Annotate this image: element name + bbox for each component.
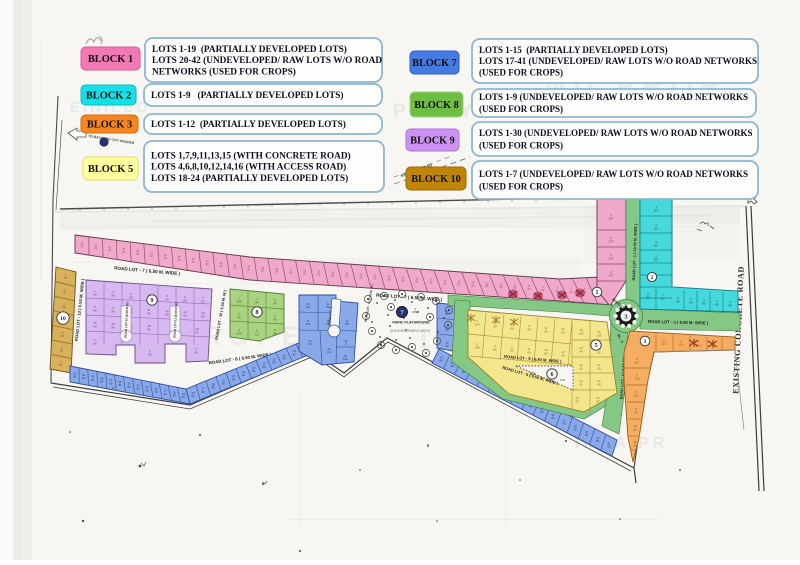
svg-text:3880: 3880 bbox=[100, 377, 104, 384]
svg-text:BLOCK 5: BLOCK 5 bbox=[88, 164, 133, 175]
svg-text:(USED FOR CROPS): (USED FOR CROPS) bbox=[479, 104, 563, 114]
svg-text:LOTS 17-41 (UNDEVELOPED/ RAW L: LOTS 17-41 (UNDEVELOPED/ RAW LOTS W/O RO… bbox=[479, 56, 757, 66]
svg-text:3380: 3380 bbox=[146, 385, 150, 392]
svg-text:LOTS 1-19 (PARTIALLY DEVELOPE: LOTS 1-19 (PARTIALLY DEVELOPED LOTS) bbox=[152, 44, 347, 55]
svg-text:3180: 3180 bbox=[164, 389, 168, 396]
svg-text:BLOCK 1: BLOCK 1 bbox=[88, 54, 133, 65]
svg-text:LOTS 1-9 (UNDEVELOPED/ RAW LOT: LOTS 1-9 (UNDEVELOPED/ RAW LOTS W/O ROAD… bbox=[479, 92, 748, 102]
svg-text:1280: 1280 bbox=[561, 350, 565, 357]
svg-text:1280: 1280 bbox=[165, 309, 169, 316]
svg-text:10: 10 bbox=[60, 316, 66, 322]
svg-text:2680: 2680 bbox=[551, 413, 555, 420]
svg-text:6: 6 bbox=[551, 372, 554, 378]
svg-text:2780: 2780 bbox=[202, 387, 206, 394]
svg-text:2: 2 bbox=[651, 275, 654, 281]
svg-text:2980: 2980 bbox=[585, 430, 589, 437]
svg-text:2980: 2980 bbox=[182, 392, 186, 399]
svg-text:BLOCK 9: BLOCK 9 bbox=[410, 135, 454, 146]
svg-text:1394: 1394 bbox=[561, 327, 565, 334]
svg-text:9: 9 bbox=[151, 298, 154, 304]
svg-text:1980: 1980 bbox=[195, 327, 199, 334]
svg-text:2880: 2880 bbox=[192, 391, 196, 398]
svg-text:2580: 2580 bbox=[222, 378, 226, 385]
svg-text:5: 5 bbox=[595, 343, 598, 349]
svg-text:2780: 2780 bbox=[563, 419, 567, 426]
svg-text:3180: 3180 bbox=[607, 442, 611, 449]
svg-text:2280: 2280 bbox=[252, 366, 256, 373]
svg-text:3080: 3080 bbox=[173, 390, 177, 397]
svg-text:1180: 1180 bbox=[147, 308, 151, 315]
svg-text:BLOCK 7: BLOCK 7 bbox=[412, 58, 456, 69]
svg-text:2680: 2680 bbox=[212, 383, 216, 390]
svg-text:LOTS 1-7 (UNDEVELOPED/ RAW LOT: LOTS 1-7 (UNDEVELOPED/ RAW LOTS W/O ROAD… bbox=[479, 169, 748, 179]
svg-text:1680: 1680 bbox=[111, 322, 115, 329]
svg-text:2080: 2080 bbox=[273, 358, 277, 365]
svg-text:8: 8 bbox=[256, 310, 259, 316]
svg-text:3780: 3780 bbox=[109, 378, 113, 385]
svg-text:108: 108 bbox=[560, 378, 565, 382]
svg-text:LOTS 4,6,8,10,12,14,16 (WITH A: LOTS 4,6,8,10,12,14,16 (WITH ACCESS ROAD… bbox=[151, 162, 346, 173]
svg-text:3080: 3080 bbox=[596, 436, 600, 443]
svg-text:(USED FOR CROPS): (USED FOR CROPS) bbox=[479, 181, 563, 191]
svg-text:BLOCK 10: BLOCK 10 bbox=[411, 174, 461, 185]
svg-text:3: 3 bbox=[644, 339, 647, 345]
svg-text:4080: 4080 bbox=[82, 373, 86, 380]
svg-text:LOTS 18-24 (PARTIALLY DEVELOPE: LOTS 18-24 (PARTIALLY DEVELOPED LOTS) bbox=[151, 173, 348, 184]
svg-text:LOTS 1-9 (PARTIALLY DEVELOPE: LOTS 1-9 (PARTIALLY DEVELOPED LOTS) bbox=[151, 90, 344, 101]
svg-text:1580: 1580 bbox=[93, 321, 97, 328]
svg-text:1090: 1090 bbox=[633, 424, 637, 431]
svg-text:1880: 1880 bbox=[293, 349, 297, 356]
svg-text:BLOCK 8: BLOCK 8 bbox=[414, 100, 458, 111]
svg-text:1880: 1880 bbox=[147, 324, 151, 331]
svg-text:1980: 1980 bbox=[283, 353, 287, 360]
svg-text:PARK/ PLAYGROUND: PARK/ PLAYGROUND bbox=[392, 321, 430, 325]
svg-text:(USED FOR CROPS): (USED FOR CROPS) bbox=[479, 140, 563, 150]
svg-text:LOTS 1-30 (UNDEVELOPED/ RAW LO: LOTS 1-30 (UNDEVELOPED/ RAW LOTS W/O ROA… bbox=[479, 128, 752, 138]
svg-text:2180: 2180 bbox=[597, 363, 601, 370]
svg-text:3680: 3680 bbox=[118, 380, 122, 387]
svg-text:3580: 3580 bbox=[127, 382, 131, 389]
svg-text:LOTS 1,7,9,11,13,15 (WITH CONC: LOTS 1,7,9,11,13,15 (WITH CONCRETE ROAD) bbox=[151, 151, 351, 162]
svg-text:1480: 1480 bbox=[201, 311, 205, 318]
svg-text:2380: 2380 bbox=[242, 370, 246, 377]
svg-text:(IN DEVELOPMENT (MCH): (IN DEVELOPMENT (MCH) bbox=[390, 329, 429, 333]
svg-text:LOTS 1-15 (PARTIALLY DEVELOPE: LOTS 1-15 (PARTIALLY DEVELOPED LOTS) bbox=[479, 45, 668, 55]
svg-text:1080: 1080 bbox=[544, 348, 548, 355]
svg-text:1123: 1123 bbox=[633, 440, 637, 447]
svg-text:2397: 2397 bbox=[596, 396, 600, 403]
svg-text:2180: 2180 bbox=[262, 362, 266, 369]
svg-text:2393: 2393 bbox=[579, 379, 583, 386]
svg-text:1694: 1694 bbox=[579, 346, 583, 353]
svg-text:1680: 1680 bbox=[440, 355, 444, 362]
svg-text:NETWORKS (USED FOR CROPS): NETWORKS (USED FOR CROPS) bbox=[152, 66, 296, 77]
svg-text:2283: 2283 bbox=[579, 363, 583, 370]
svg-text:2493: 2493 bbox=[575, 396, 579, 403]
svg-text:1592: 1592 bbox=[445, 341, 449, 348]
svg-text:2880: 2880 bbox=[574, 424, 578, 431]
svg-text:1180: 1180 bbox=[544, 326, 548, 333]
svg-text:LOTS 20-42 (UNDEVELOPED/ RAW L: LOTS 20-42 (UNDEVELOPED/ RAW LOTS W/O RO… bbox=[152, 55, 382, 66]
svg-text:3980: 3980 bbox=[91, 375, 95, 382]
svg-text:4180: 4180 bbox=[73, 371, 77, 378]
svg-text:2280: 2280 bbox=[597, 379, 601, 386]
svg-text:(USED FOR CROPS): (USED FOR CROPS) bbox=[479, 67, 563, 77]
svg-text:1: 1 bbox=[596, 290, 599, 296]
svg-text:2480: 2480 bbox=[232, 374, 236, 381]
svg-text:3480: 3480 bbox=[137, 383, 141, 390]
svg-text:LOTS 1-12 (PARTIALLY DEVELOPE: LOTS 1-12 (PARTIALLY DEVELOPED LOTS) bbox=[151, 119, 346, 130]
svg-text:BLOCK 2: BLOCK 2 bbox=[86, 91, 131, 102]
svg-text:3280: 3280 bbox=[155, 387, 159, 394]
svg-text:BLOCK 3: BLOCK 3 bbox=[87, 120, 132, 131]
svg-text:1380: 1380 bbox=[183, 310, 187, 317]
